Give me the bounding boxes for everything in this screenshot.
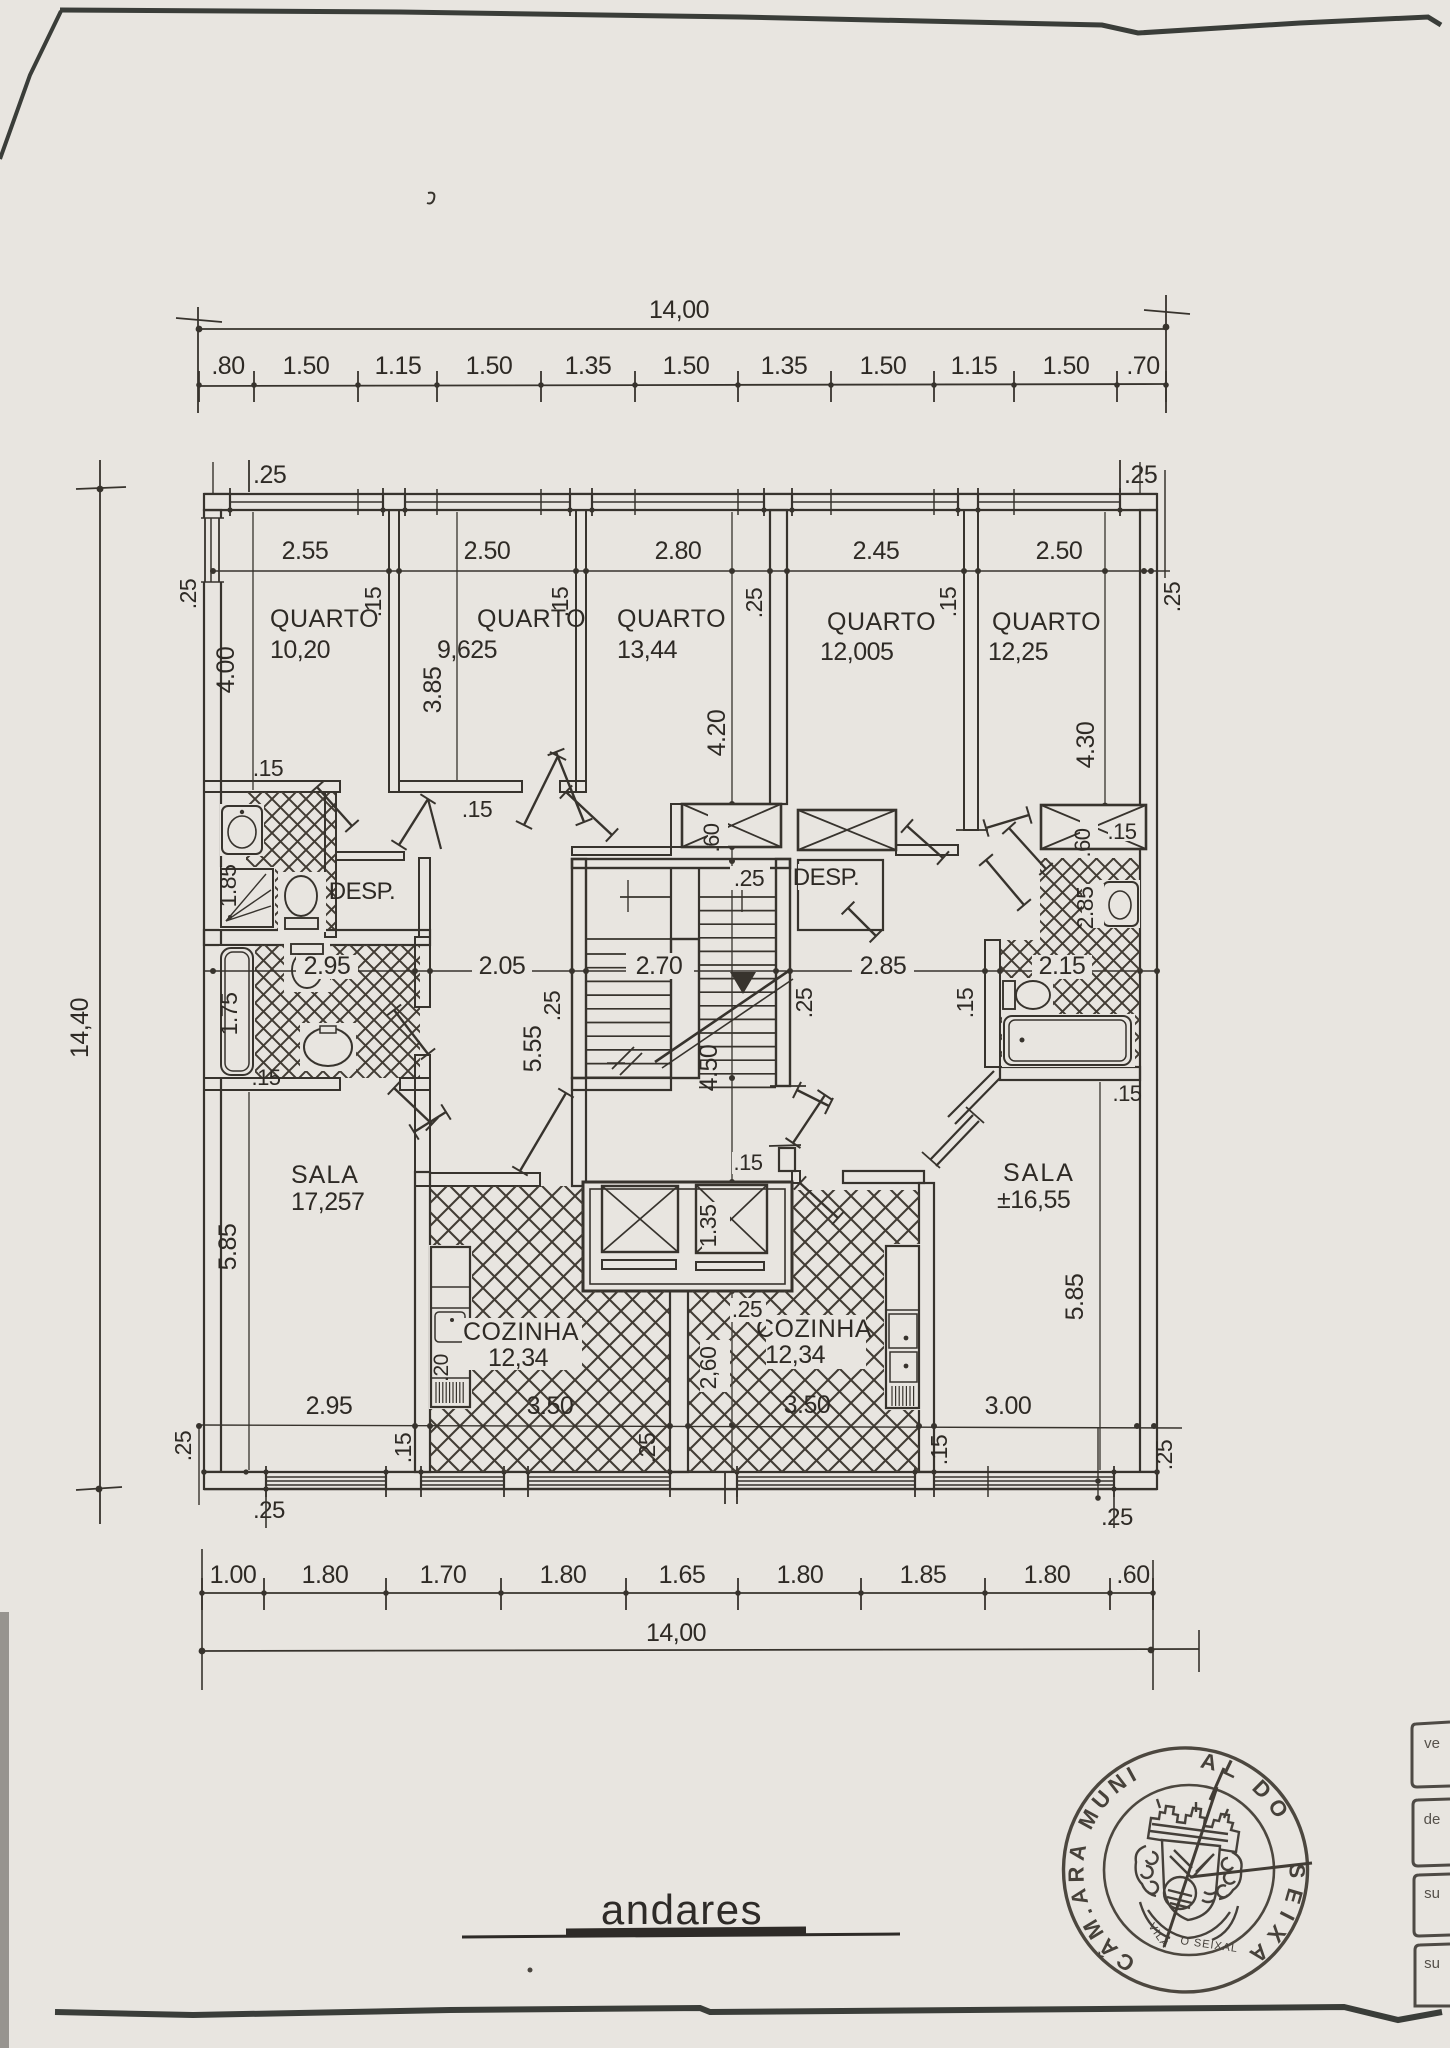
svg-text:2.55: 2.55 bbox=[282, 537, 329, 565]
svg-text:4.00: 4.00 bbox=[212, 647, 240, 694]
svg-text:.25: .25 bbox=[734, 865, 764, 891]
svg-text:1.50: 1.50 bbox=[860, 352, 907, 380]
svg-text:.25: .25 bbox=[1159, 582, 1185, 612]
svg-text:1.75: 1.75 bbox=[216, 993, 242, 1036]
svg-text:SALA: SALA bbox=[1003, 1159, 1075, 1187]
svg-text:QUARTO: QUARTO bbox=[270, 605, 379, 633]
svg-text:12,005: 12,005 bbox=[820, 638, 893, 666]
svg-text:.15: .15 bbox=[733, 1150, 762, 1175]
svg-text:.25: .25 bbox=[175, 579, 201, 609]
svg-text:COZINHA: COZINHA bbox=[463, 1318, 579, 1346]
svg-text:1.35: 1.35 bbox=[695, 1205, 721, 1248]
svg-text:su: su bbox=[1424, 1885, 1440, 1902]
svg-text:14,40: 14,40 bbox=[66, 998, 94, 1058]
svg-text:.15: .15 bbox=[1112, 1081, 1141, 1106]
svg-text:5.85: 5.85 bbox=[1061, 1274, 1089, 1321]
svg-text:.60: .60 bbox=[1116, 1561, 1149, 1589]
svg-text:.80: .80 bbox=[211, 352, 244, 380]
svg-text:de: de bbox=[1424, 1811, 1441, 1828]
svg-text:2.95: 2.95 bbox=[304, 952, 351, 980]
svg-text:1.00: 1.00 bbox=[210, 1561, 257, 1589]
svg-text:2.70: 2.70 bbox=[636, 952, 683, 980]
svg-text:2.95: 2.95 bbox=[306, 1392, 353, 1420]
svg-text:.25: .25 bbox=[253, 1497, 285, 1524]
svg-text:4.50: 4.50 bbox=[695, 1045, 723, 1092]
svg-text:.25: .25 bbox=[1151, 1440, 1177, 1470]
svg-text:.15: .15 bbox=[926, 1435, 952, 1465]
svg-text:DESP.: DESP. bbox=[329, 878, 395, 905]
svg-text:13,44: 13,44 bbox=[617, 636, 678, 664]
svg-text:.25: .25 bbox=[1101, 1504, 1133, 1531]
svg-text:1.35: 1.35 bbox=[565, 352, 612, 380]
svg-text:5.85: 5.85 bbox=[214, 1224, 242, 1271]
svg-text:1.50: 1.50 bbox=[1043, 352, 1090, 380]
svg-text:.60: .60 bbox=[699, 823, 724, 852]
svg-text:2.45: 2.45 bbox=[853, 537, 900, 565]
svg-text:12,34: 12,34 bbox=[765, 1341, 826, 1369]
svg-text:.25: .25 bbox=[539, 991, 565, 1021]
svg-text:3.50: 3.50 bbox=[527, 1392, 574, 1420]
svg-text:DESP.: DESP. bbox=[793, 864, 859, 891]
svg-text:3.50: 3.50 bbox=[784, 1391, 831, 1419]
svg-text:.25: .25 bbox=[634, 1433, 660, 1463]
svg-text:.60: .60 bbox=[1070, 828, 1095, 857]
svg-text:1.85: 1.85 bbox=[215, 865, 241, 908]
svg-text:1.65: 1.65 bbox=[659, 1561, 706, 1589]
svg-text:3.00: 3.00 bbox=[985, 1392, 1032, 1420]
svg-text:.20: .20 bbox=[430, 1354, 453, 1382]
svg-text:14,00: 14,00 bbox=[649, 296, 709, 324]
svg-text:QUARTO: QUARTO bbox=[827, 608, 936, 636]
svg-text:1.50: 1.50 bbox=[466, 352, 513, 380]
svg-text:QUARTO: QUARTO bbox=[992, 608, 1101, 636]
svg-text:.70: .70 bbox=[1126, 352, 1159, 380]
svg-text:±16,55: ±16,55 bbox=[997, 1186, 1070, 1214]
svg-text:SALA: SALA bbox=[291, 1161, 359, 1189]
svg-text:1.85: 1.85 bbox=[900, 1561, 947, 1589]
svg-text:2.85: 2.85 bbox=[860, 952, 907, 980]
svg-text:5.55: 5.55 bbox=[519, 1026, 547, 1073]
svg-text:2.05: 2.05 bbox=[479, 952, 526, 980]
svg-text:1.35: 1.35 bbox=[761, 352, 808, 380]
svg-text:1.15: 1.15 bbox=[951, 352, 998, 380]
svg-text:.25: .25 bbox=[791, 988, 817, 1018]
svg-text:2.80: 2.80 bbox=[655, 537, 702, 565]
svg-text:.15: .15 bbox=[390, 1433, 416, 1463]
svg-text:1.15: 1.15 bbox=[375, 352, 422, 380]
svg-text:1.70: 1.70 bbox=[420, 1561, 467, 1589]
svg-text:14,00: 14,00 bbox=[646, 1619, 706, 1647]
svg-text:.15: .15 bbox=[935, 587, 961, 617]
svg-text:1.50: 1.50 bbox=[283, 352, 330, 380]
svg-text:12,25: 12,25 bbox=[988, 638, 1048, 666]
svg-text:.15: .15 bbox=[253, 755, 283, 781]
svg-text:9,625: 9,625 bbox=[437, 636, 497, 664]
svg-text:2.15: 2.15 bbox=[1039, 952, 1086, 980]
svg-text:4.30: 4.30 bbox=[1072, 722, 1100, 769]
svg-text:.15: .15 bbox=[251, 1065, 280, 1090]
svg-text:.25: .25 bbox=[170, 1431, 196, 1461]
svg-text:12,34: 12,34 bbox=[488, 1344, 549, 1372]
svg-text:1.80: 1.80 bbox=[1024, 1561, 1071, 1589]
svg-text:su: su bbox=[1424, 1955, 1440, 1972]
svg-text:2.50: 2.50 bbox=[464, 537, 511, 565]
svg-text:QUARTO: QUARTO bbox=[477, 605, 586, 633]
svg-text:QUARTO: QUARTO bbox=[617, 605, 726, 633]
svg-text:.25: .25 bbox=[741, 588, 767, 618]
svg-text:4.20: 4.20 bbox=[703, 710, 731, 757]
svg-text:2.50: 2.50 bbox=[1036, 537, 1083, 565]
svg-text:1.80: 1.80 bbox=[302, 1561, 349, 1589]
svg-text:10,20: 10,20 bbox=[270, 636, 330, 664]
svg-text:.15: .15 bbox=[952, 988, 978, 1018]
svg-text:17,257: 17,257 bbox=[291, 1188, 364, 1216]
svg-text:2.85: 2.85 bbox=[1072, 887, 1098, 930]
svg-text:COZINHA: COZINHA bbox=[756, 1315, 872, 1343]
svg-text:.15: .15 bbox=[1107, 819, 1136, 844]
svg-text:ve: ve bbox=[1424, 1735, 1440, 1752]
svg-text:1.50: 1.50 bbox=[663, 352, 710, 380]
svg-text:3.85: 3.85 bbox=[419, 667, 447, 714]
svg-text:.25: .25 bbox=[253, 461, 286, 489]
svg-text:2,60: 2,60 bbox=[695, 1347, 721, 1390]
svg-text:1.80: 1.80 bbox=[777, 1561, 824, 1589]
svg-text:.15: .15 bbox=[462, 796, 492, 822]
svg-text:.25: .25 bbox=[732, 1296, 762, 1322]
svg-text:andares: andares bbox=[601, 1886, 763, 1933]
svg-text:1.80: 1.80 bbox=[540, 1561, 587, 1589]
